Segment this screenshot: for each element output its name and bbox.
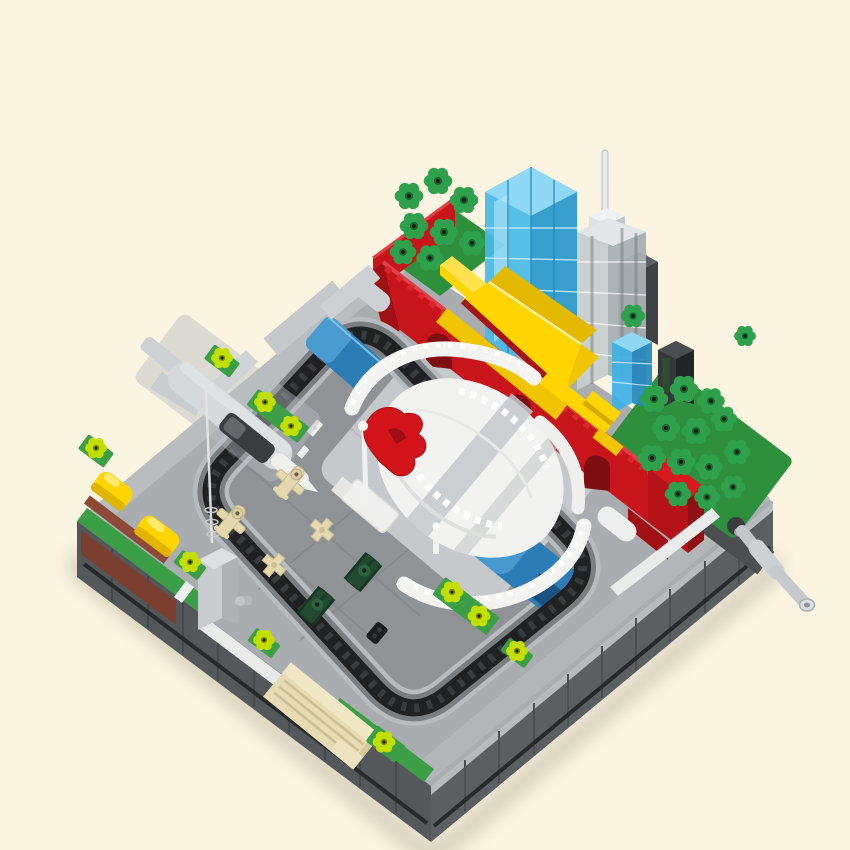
antenna-spire bbox=[602, 150, 608, 214]
lego-diorama-render bbox=[0, 0, 850, 850]
flag-finial bbox=[358, 421, 368, 431]
faucet-piece bbox=[235, 596, 252, 606]
diorama-canvas bbox=[0, 0, 850, 850]
